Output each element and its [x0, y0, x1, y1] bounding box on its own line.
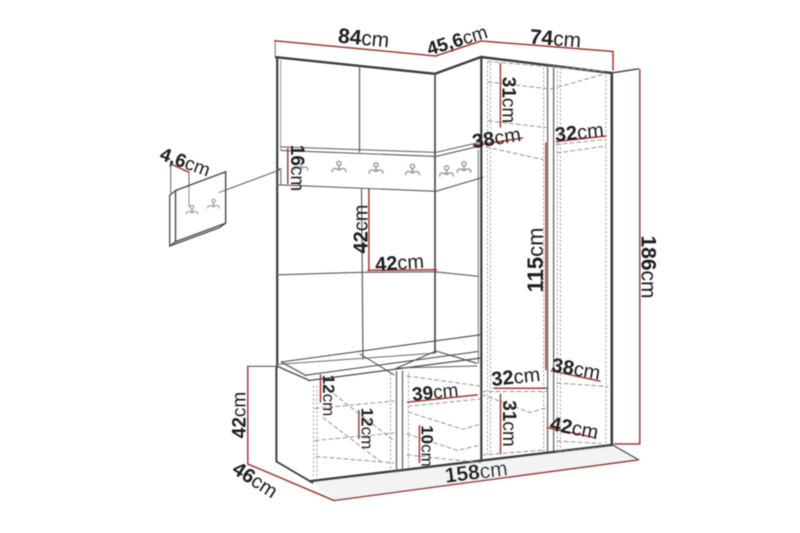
svg-text:38cm: 38cm	[550, 355, 602, 385]
svg-text:158cm: 158cm	[444, 457, 509, 488]
svg-text:32cm: 32cm	[554, 120, 605, 147]
svg-text:12cm: 12cm	[319, 375, 338, 417]
svg-text:46cm: 46cm	[228, 458, 281, 503]
svg-text:31cm: 31cm	[498, 400, 519, 446]
svg-text:45,6cm: 45,6cm	[425, 22, 491, 60]
svg-text:38cm: 38cm	[471, 124, 523, 153]
svg-text:186cm: 186cm	[636, 235, 659, 298]
svg-text:4,6cm: 4,6cm	[157, 144, 213, 181]
svg-text:42cm: 42cm	[230, 392, 251, 438]
svg-text:31cm: 31cm	[498, 77, 519, 123]
svg-text:42cm: 42cm	[351, 205, 373, 254]
svg-text:42cm: 42cm	[374, 251, 424, 276]
svg-text:115cm: 115cm	[523, 228, 548, 293]
svg-text:74cm: 74cm	[529, 26, 582, 53]
svg-text:10cm: 10cm	[418, 425, 437, 467]
svg-text:42cm: 42cm	[548, 413, 600, 444]
svg-text:84cm: 84cm	[337, 25, 390, 53]
svg-text:32cm: 32cm	[490, 364, 541, 391]
svg-text:12cm: 12cm	[357, 408, 376, 450]
svg-text:16cm: 16cm	[286, 145, 307, 191]
